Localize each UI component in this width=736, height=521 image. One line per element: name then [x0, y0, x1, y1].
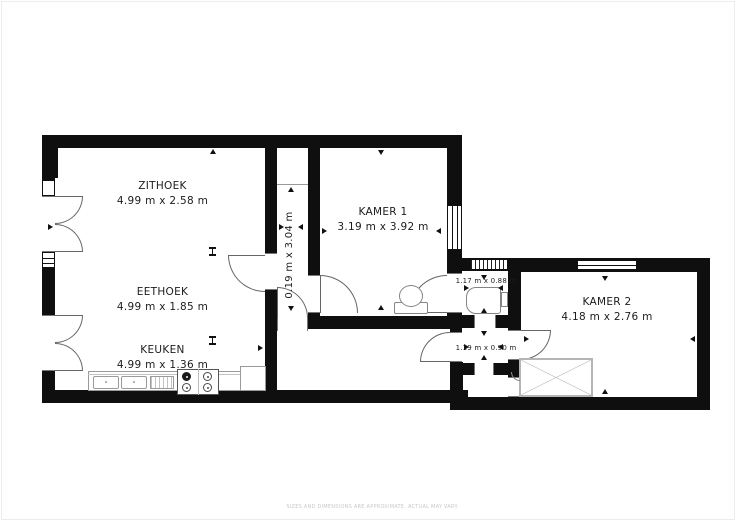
doorway: [308, 275, 320, 313]
geyser-icon: [501, 292, 508, 307]
dimension-marker: [602, 276, 608, 281]
dimension-marker: [524, 336, 529, 342]
dimension-marker: [378, 305, 384, 310]
door-leaf: [55, 370, 83, 371]
window-icon: [42, 252, 55, 268]
room-size: 4.99 m x 1.85 m: [90, 300, 235, 315]
wall: [265, 148, 277, 253]
wall: [42, 148, 55, 180]
wall: [42, 390, 468, 403]
stove-burner-icon: [182, 372, 191, 381]
dimension-line: [277, 184, 308, 185]
door-leaf: [320, 275, 321, 313]
wall: [508, 397, 710, 410]
door-leaf: [55, 315, 83, 316]
window-icon: [577, 260, 637, 270]
dimension-marker: [464, 285, 469, 291]
stove-burner-icon: [203, 372, 212, 381]
room-name: KEUKEN: [90, 343, 235, 358]
faucet-icon: [133, 381, 135, 383]
wall: [447, 135, 462, 205]
faucet-icon: [105, 381, 107, 383]
wall: [496, 315, 520, 328]
doorway: [42, 315, 55, 371]
dimension-marker: [481, 308, 487, 313]
room-label-zithoek: ZITHOEK 4.99 m x 2.58 m: [90, 179, 235, 209]
dimension-marker: [210, 149, 216, 154]
room-label-kamer2: KAMER 2 4.18 m x 2.76 m: [536, 295, 678, 325]
wall: [455, 397, 520, 410]
dimension-marker: [209, 247, 216, 256]
room-size: 4.18 m x 2.76 m: [536, 310, 678, 325]
wall: [450, 325, 462, 332]
window-icon: [42, 180, 55, 196]
door-leaf: [55, 251, 83, 252]
dimension-marker: [258, 345, 263, 351]
disclaimer-text: SIZES AND DIMENSIONS ARE APPROXIMATE. AC…: [255, 504, 490, 510]
dimension-marker: [378, 150, 384, 155]
dimension-marker: [690, 336, 695, 342]
doorway: [265, 253, 277, 290]
room-name: ZITHOEK: [90, 179, 235, 194]
floor-plan: ZITHOEK 4.99 m x 2.58 m EETHOEK 4.99 m x…: [0, 0, 736, 521]
drainer-icon: [150, 376, 174, 389]
room-size: 3.19 m x 3.92 m: [312, 220, 454, 235]
room-name: KAMER 2: [536, 295, 678, 310]
wall: [265, 290, 277, 403]
door-leaf: [277, 287, 278, 318]
room-name: EETHOEK: [90, 285, 235, 300]
room-size: 4.99 m x 1.36 m: [90, 358, 235, 373]
stove-burner-icon: [203, 383, 212, 392]
louvre-window-icon: [470, 259, 508, 270]
wall: [697, 258, 710, 410]
room-label-gang: 1.19 m x 0.90 m: [452, 344, 520, 352]
room-name: KAMER 1: [312, 205, 454, 220]
wall: [42, 268, 55, 315]
wall: [462, 363, 474, 375]
door-leaf: [420, 361, 450, 362]
wall: [447, 250, 462, 273]
door-leaf: [228, 255, 265, 256]
wall: [42, 135, 462, 148]
room-label-badkamer: 1.17 m x 0.88 m: [452, 277, 520, 285]
dimension-marker: [498, 285, 503, 291]
dimension-marker: [481, 331, 487, 336]
toilet-bowl-icon: [399, 285, 423, 307]
passage: [474, 315, 496, 328]
dimension-marker: [481, 355, 487, 360]
door-leaf: [55, 196, 83, 197]
wall: [462, 315, 474, 328]
room-label-hal: 0.19 m x 3.04 m: [284, 190, 300, 320]
wardrobe-icon: [519, 358, 593, 397]
passage: [474, 363, 494, 375]
counter-corner: [240, 366, 266, 391]
room-size: 4.99 m x 2.58 m: [90, 194, 235, 209]
door-leaf: [521, 330, 551, 331]
dimension-marker: [602, 389, 608, 394]
room-label-eethoek: EETHOEK 4.99 m x 1.85 m: [90, 285, 235, 315]
stove-burner-icon: [182, 383, 191, 392]
wall: [308, 316, 462, 329]
room-label-keuken: KEUKEN 4.99 m x 1.36 m: [90, 343, 235, 373]
room-label-kamer1: KAMER 1 3.19 m x 3.92 m: [312, 205, 454, 235]
dimension-marker: [48, 224, 53, 230]
